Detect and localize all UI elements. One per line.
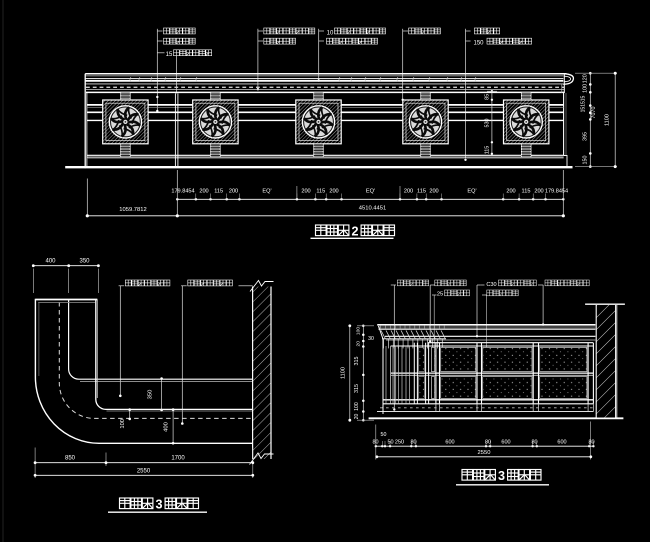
svg-text:4510.4451: 4510.4451 (359, 205, 386, 211)
svg-text:315: 315 (354, 384, 360, 393)
svg-text:100: 100 (356, 327, 362, 335)
svg-text:20: 20 (356, 341, 362, 347)
svg-text:200: 200 (429, 188, 438, 194)
svg-text:115: 115 (214, 188, 223, 194)
svg-text:200: 200 (329, 188, 338, 194)
svg-text:20: 20 (354, 414, 360, 420)
svg-text:10: 10 (327, 30, 334, 36)
svg-text:200: 200 (301, 188, 310, 194)
svg-text:80: 80 (485, 440, 491, 446)
svg-text:150: 150 (583, 156, 589, 165)
svg-text:85: 85 (485, 94, 491, 100)
svg-text:179.8454: 179.8454 (171, 188, 194, 194)
svg-text:1700: 1700 (171, 456, 185, 462)
svg-text:1059.7812: 1059.7812 (119, 207, 146, 213)
svg-text:400: 400 (45, 258, 56, 264)
svg-text:115: 115 (522, 188, 531, 194)
svg-text:600: 600 (557, 440, 566, 446)
svg-text:250: 250 (395, 440, 404, 446)
svg-text:30: 30 (368, 336, 374, 342)
svg-text:120: 120 (583, 74, 589, 83)
svg-text:25: 25 (437, 291, 443, 297)
svg-text:115: 115 (485, 146, 491, 155)
svg-text:850: 850 (65, 456, 76, 462)
svg-text:200: 200 (404, 188, 413, 194)
svg-text:115: 115 (417, 188, 426, 194)
svg-text:600: 600 (445, 440, 454, 446)
svg-text:200: 200 (229, 188, 238, 194)
svg-text:C30: C30 (486, 282, 496, 288)
svg-text:100: 100 (354, 402, 360, 411)
svg-text:EQ': EQ' (262, 188, 271, 194)
svg-text:350: 350 (79, 258, 90, 264)
svg-text:50: 50 (387, 440, 393, 446)
svg-text:100: 100 (583, 84, 589, 93)
svg-text:EQ': EQ' (467, 188, 476, 194)
svg-text:80: 80 (531, 440, 537, 446)
svg-text:2550: 2550 (478, 450, 491, 456)
svg-text:400: 400 (164, 422, 170, 432)
svg-text:2: 2 (351, 225, 358, 239)
svg-text:350: 350 (148, 390, 154, 400)
svg-text:80: 80 (410, 440, 416, 446)
svg-text:179.8454: 179.8454 (545, 188, 568, 194)
svg-text:395: 395 (583, 132, 589, 141)
svg-text:151515: 151515 (581, 95, 587, 112)
svg-text:200: 200 (506, 188, 515, 194)
svg-text:EQ': EQ' (366, 188, 375, 194)
svg-text:2550: 2550 (137, 468, 151, 474)
svg-text:3: 3 (498, 469, 505, 483)
svg-text:1100: 1100 (605, 114, 611, 126)
svg-text:7070: 7070 (591, 107, 597, 119)
svg-text:80: 80 (372, 440, 378, 446)
svg-text:15: 15 (166, 52, 173, 58)
svg-text:115: 115 (316, 188, 325, 194)
svg-text:200: 200 (199, 188, 208, 194)
svg-text:100: 100 (120, 419, 126, 429)
svg-text:530: 530 (485, 119, 491, 128)
svg-text:80: 80 (588, 440, 594, 446)
svg-text:200: 200 (534, 188, 543, 194)
svg-text:50: 50 (381, 432, 387, 438)
svg-text:315: 315 (354, 357, 360, 366)
svg-text:600: 600 (501, 440, 510, 446)
svg-text:3: 3 (155, 498, 162, 512)
svg-text:1100: 1100 (341, 367, 347, 379)
svg-text:150: 150 (473, 41, 484, 47)
